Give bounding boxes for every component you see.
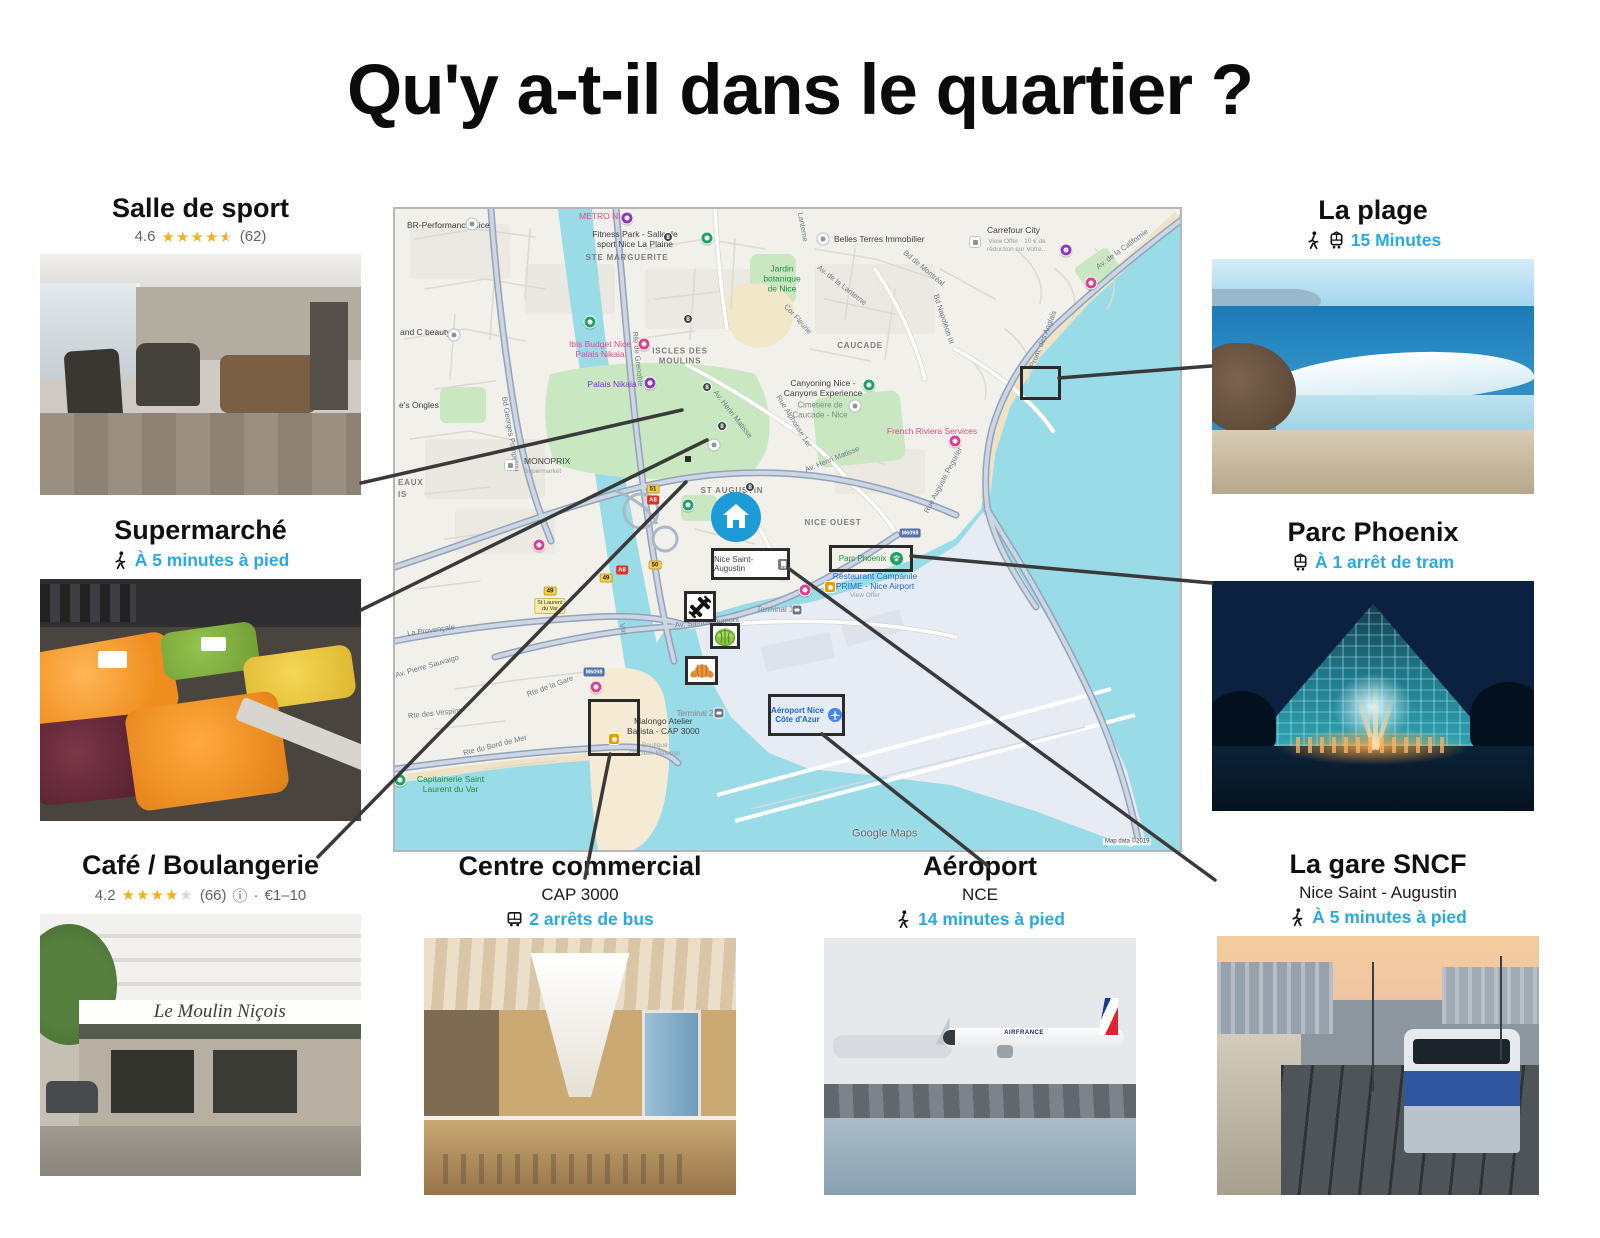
poi-subtitle: NCE	[824, 885, 1136, 905]
star-rating: ★★★★★	[122, 886, 194, 904]
photo-shape	[1372, 962, 1374, 1092]
rating-count: (62)	[240, 228, 267, 245]
photo-shape	[824, 1118, 1136, 1195]
rating-count: (66)	[200, 887, 227, 904]
storefront-sign: Le Moulin Niçois	[154, 1001, 286, 1023]
photo-beach	[1212, 259, 1534, 494]
poi-salle-de-sport: Salle de sport 4.6 ★★★★★ (62)	[40, 194, 361, 495]
infographic-canvas: Qu'y a-t-il dans le quartier ?	[0, 0, 1600, 1238]
photo-shape: AIRFRANCE	[943, 1017, 1124, 1053]
rating-row: 4.6 ★★★★★ (62)	[40, 228, 361, 246]
photo-gym	[40, 254, 361, 495]
walk-icon	[1289, 908, 1306, 926]
info-icon: ⓘ	[233, 885, 248, 906]
photo-cafe-storefront: Le Moulin Niçois	[40, 914, 361, 1176]
photo-shape	[997, 1045, 1013, 1058]
photo-shape	[833, 1035, 952, 1058]
poi-aeroport: Aéroport NCE 14 minutes à pied AIRFRANCE	[824, 852, 1136, 1195]
star-icon: ★	[190, 229, 204, 246]
poi-title: Supermarché	[40, 516, 361, 546]
poi-centre-commercial: Centre commercial CAP 3000 2 arrêts de b…	[424, 852, 736, 1195]
transport-text: À 1 arrêt de tram	[1315, 552, 1454, 573]
tram-icon	[1328, 231, 1345, 249]
airport-callout-label: Aéroport Nice Côte d'Azur	[771, 706, 824, 724]
walk-icon	[112, 551, 129, 569]
photo-mall-interior	[424, 938, 736, 1195]
map-artwork	[395, 209, 1180, 850]
transport-row: 15 Minutes	[1212, 230, 1534, 251]
walk-icon	[1305, 231, 1322, 249]
star-icon: ★	[165, 887, 179, 904]
photo-shape	[213, 1050, 296, 1113]
photo-shape	[1500, 956, 1502, 1060]
spacer	[685, 456, 691, 462]
callout-mall	[588, 699, 640, 756]
photo-shape	[1217, 962, 1333, 1035]
poi-title: Parc Phoenix	[1212, 518, 1534, 548]
park-callout-label: Parc Phoenix	[839, 554, 887, 563]
star-icon: ★	[205, 229, 219, 246]
rating-value: 4.6	[135, 228, 156, 245]
callout-supermarket	[710, 623, 740, 649]
croissant-icon	[689, 660, 715, 682]
transport-row: 2 arrêts de bus	[424, 909, 736, 930]
photo-shape	[46, 1081, 97, 1112]
transport-text: 15 Minutes	[1351, 230, 1441, 251]
tram-icon	[1292, 553, 1309, 571]
star-icon: ★	[161, 229, 175, 246]
photo-shape: Le Moulin Niçois	[79, 1000, 361, 1024]
poi-subtitle: Nice Saint - Augustin	[1217, 883, 1539, 903]
station-callout-label: Nice Saint-Augustin	[714, 555, 774, 573]
photo-airplanes: AIRFRANCE	[824, 938, 1136, 1195]
transport-text: 14 minutes à pied	[918, 909, 1065, 930]
poi-parc-phoenix: Parc Phoenix À 1 arrêt de tram	[1212, 518, 1534, 811]
poi-supermarche: Supermarché À 5 minutes à pied	[40, 516, 361, 821]
photo-shape	[1098, 998, 1118, 1036]
dumbbell-icon	[687, 594, 713, 620]
photo-shape	[1212, 691, 1276, 751]
photo-shape	[424, 1116, 736, 1120]
poi-title: La plage	[1212, 196, 1534, 226]
paw-icon	[890, 552, 903, 565]
photo-shape	[443, 1154, 693, 1185]
home-icon	[710, 491, 762, 543]
callout-park: Parc Phoenix	[829, 545, 913, 572]
photo-shape	[40, 584, 136, 623]
star-icon: ★	[122, 887, 136, 904]
photo-shape	[1276, 395, 1534, 433]
transport-text: À 5 minutes à pied	[135, 550, 290, 571]
poi-title: La gare SNCF	[1217, 850, 1539, 880]
photo-shape	[824, 1084, 1136, 1117]
poi-subtitle: CAP 3000	[424, 885, 736, 905]
photo-supermarket	[40, 579, 361, 821]
photo-shape	[1413, 1039, 1510, 1064]
train-icon	[778, 559, 787, 570]
star-icon: ★	[136, 887, 150, 904]
lettuce-icon	[713, 625, 737, 647]
star-icon: ★	[176, 229, 190, 246]
poi-title: Centre commercial	[424, 852, 736, 882]
star-icon: ★	[179, 887, 193, 904]
callout-cafe	[685, 656, 718, 685]
plane-icon	[828, 708, 842, 722]
photo-shape	[40, 413, 361, 495]
star-icon: ★	[150, 887, 164, 904]
poi-cafe-boulangerie: Café / Boulangerie 4.2 ★★★★★ (66) ⓘ · €1…	[40, 851, 361, 1176]
photo-shape	[424, 1010, 499, 1123]
transport-row: À 1 arrêt de tram	[1212, 552, 1534, 573]
transport-text: À 5 minutes à pied	[1312, 907, 1467, 928]
photo-shape	[136, 343, 200, 406]
photo-shape	[79, 1024, 361, 1040]
page-title: Qu'y a-t-il dans le quartier ?	[0, 50, 1600, 131]
callout-airport: Aéroport Nice Côte d'Azur	[768, 694, 845, 736]
photo-shape	[1442, 967, 1539, 1024]
photo-shape	[1296, 737, 1451, 753]
photo-shape	[111, 1050, 194, 1113]
rating-row: 4.2 ★★★★★ (66) ⓘ · €1–10	[40, 885, 361, 906]
transport-row: 14 minutes à pied	[824, 909, 1136, 930]
callout-station: Nice Saint-Augustin	[711, 548, 790, 580]
photo-shape	[1212, 430, 1534, 493]
walk-icon	[895, 910, 912, 928]
home-marker	[710, 491, 762, 548]
rating-value: 4.2	[95, 887, 116, 904]
photo-shape	[1470, 682, 1534, 751]
map-canvas[interactable]: BR-Performance NiceMETRO NiceFitness Par…	[393, 207, 1182, 852]
callout-gym	[684, 591, 716, 622]
photo-shape	[201, 637, 227, 652]
photo-shape	[40, 1126, 361, 1176]
bus-icon	[506, 910, 523, 928]
star-rating: ★★★★★	[161, 228, 233, 246]
poi-title: Café / Boulangerie	[40, 851, 361, 881]
poi-gare-sncf: La gare SNCF Nice Saint - Augustin À 5 m…	[1217, 850, 1539, 1195]
poi-title: Salle de sport	[40, 194, 361, 224]
photo-shape	[98, 651, 127, 668]
star-icon: ★	[219, 229, 233, 246]
callout-beach	[1020, 366, 1061, 400]
price-range: €1–10	[265, 887, 307, 904]
poi-la-plage: La plage 15 Minutes	[1212, 196, 1534, 494]
transport-text: 2 arrêts de bus	[529, 909, 654, 930]
photo-shape	[310, 302, 349, 410]
airline-text: AIRFRANCE	[1004, 1030, 1044, 1036]
separator: ·	[254, 887, 259, 904]
transport-row: À 5 minutes à pied	[40, 550, 361, 571]
photo-shape	[220, 355, 316, 413]
photo-train-station	[1217, 936, 1539, 1195]
transport-row: À 5 minutes à pied	[1217, 907, 1539, 928]
poi-title: Aéroport	[824, 852, 1136, 882]
photo-parc-phoenix-night	[1212, 581, 1534, 811]
